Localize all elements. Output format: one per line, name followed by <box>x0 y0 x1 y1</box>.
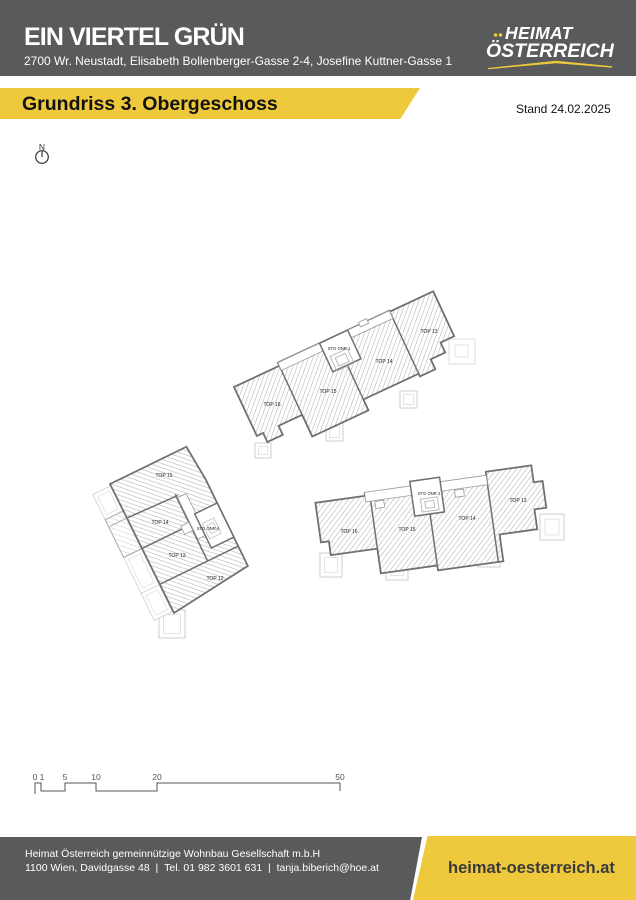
svg-text:TOP 14: TOP 14 <box>458 516 475 522</box>
svg-text:TOP 15: TOP 15 <box>155 473 172 479</box>
svg-text:TOP 12: TOP 12 <box>206 576 223 582</box>
svg-text:TOP 15: TOP 15 <box>319 389 336 395</box>
svg-text:0: 0 <box>33 772 38 782</box>
svg-text:TOP 15: TOP 15 <box>398 527 415 533</box>
svg-text:TOP 14: TOP 14 <box>151 520 168 526</box>
svg-text:STG ONR 2: STG ONR 2 <box>418 491 441 496</box>
svg-text:TOP 14: TOP 14 <box>375 359 392 365</box>
svg-text:STG ONR 4: STG ONR 4 <box>197 526 220 531</box>
svg-text:20: 20 <box>152 772 162 782</box>
svg-text:STG ONR 1: STG ONR 1 <box>328 346 351 351</box>
svg-text:N: N <box>39 142 45 152</box>
svg-text:TOP 16: TOP 16 <box>263 402 280 408</box>
svg-text:TOP 13: TOP 13 <box>509 498 526 504</box>
svg-text:TOP 13: TOP 13 <box>420 329 437 335</box>
svg-text:5: 5 <box>63 772 68 782</box>
svg-text:1: 1 <box>40 772 45 782</box>
svg-text:50: 50 <box>335 772 345 782</box>
svg-text:TOP 16: TOP 16 <box>340 529 357 535</box>
svg-text:TOP 13: TOP 13 <box>168 553 185 559</box>
svg-text:10: 10 <box>91 772 101 782</box>
